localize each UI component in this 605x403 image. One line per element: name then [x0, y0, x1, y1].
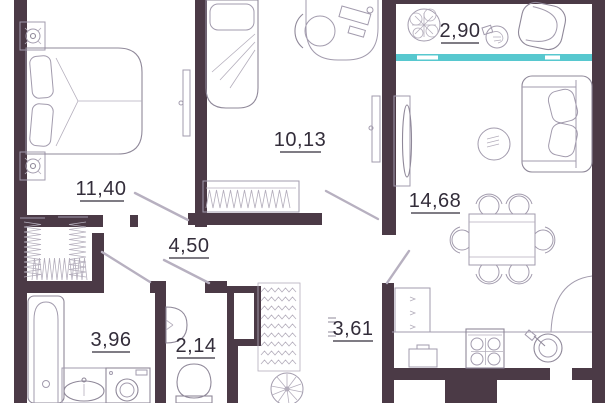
wc-door-leaf — [164, 260, 209, 283]
keyboard — [339, 6, 371, 25]
single-bed — [206, 0, 258, 108]
outer-wall-left — [14, 0, 27, 403]
room-bedroom — [20, 22, 190, 180]
glazing-tick — [545, 56, 560, 60]
glazing-tick — [417, 56, 438, 60]
svg-text:10,13: 10,13 — [274, 129, 327, 151]
wardrobe — [203, 181, 299, 212]
svg-text:2,90: 2,90 — [440, 20, 481, 42]
room-label-wc: 2,14 — [176, 335, 217, 358]
wall-stub — [130, 215, 138, 227]
kitchen — [392, 276, 592, 368]
floor-plan-canvas: 11,40 10,13 2,90 14,68 4,50 3,96 2,14 3,… — [0, 0, 605, 403]
plant-icon — [408, 9, 440, 41]
area-labels: 11,40 10,13 2,90 14,68 4,50 3,96 2,14 3,… — [75, 20, 480, 358]
room-balcony — [408, 0, 568, 52]
room-label-living-kitchen: 14,68 — [409, 190, 462, 213]
coffee-table — [478, 128, 510, 160]
kitchen-bottom-wall — [392, 368, 550, 380]
room-corridor — [258, 283, 336, 403]
svg-text:14,68: 14,68 — [409, 190, 462, 212]
dining-chair — [476, 194, 502, 216]
kitchen-door-leaf — [387, 251, 409, 283]
blanket-fold — [212, 34, 255, 88]
room-label-hallway: 4,50 — [169, 235, 210, 258]
svg-text:2,14: 2,14 — [176, 335, 217, 357]
room-bedroom-2 — [203, 0, 380, 212]
pillow — [29, 55, 54, 99]
bath-top-wall — [14, 281, 104, 293]
counter-corner — [551, 276, 592, 332]
fan-icon — [271, 373, 303, 403]
radiator — [369, 96, 380, 162]
washbasin — [62, 368, 106, 403]
room-label-bedroom-2: 10,13 — [274, 129, 327, 152]
pillow — [29, 103, 54, 147]
pillow — [210, 4, 254, 30]
lower-wall-stub — [445, 380, 497, 403]
room-label-bedroom: 11,40 — [75, 178, 126, 201]
base-cabinet — [409, 345, 437, 367]
wall-corridor-kitchen — [382, 283, 394, 403]
bathroom-door-leaf — [102, 252, 150, 282]
room-label-bathroom: 3,96 — [91, 329, 132, 352]
outer-wall-right — [592, 0, 605, 403]
floor-plan: 11,40 10,13 2,90 14,68 4,50 3,96 2,14 3,… — [0, 0, 605, 403]
desk-chair — [295, 14, 335, 48]
desk — [306, 0, 378, 60]
toilet — [176, 364, 212, 403]
wall-bath-wc — [155, 281, 166, 403]
bed2-bottom-wall — [188, 213, 322, 225]
dining-chair — [533, 227, 555, 253]
dining-table-set — [450, 194, 555, 284]
room-label-balcony: 2,90 — [440, 20, 481, 43]
sofa-pillow — [547, 122, 579, 159]
svg-text:11,40: 11,40 — [75, 178, 126, 200]
svg-text:3,96: 3,96 — [91, 329, 132, 351]
room-living-kitchen — [392, 76, 592, 368]
blanket-fold — [56, 58, 142, 146]
sofa — [522, 76, 592, 172]
wardrobe-hangers — [258, 283, 300, 371]
kitchen-bottom-wall-right — [572, 368, 605, 380]
svg-text:4,50: 4,50 — [169, 235, 210, 257]
stove — [466, 329, 504, 368]
radiator — [179, 70, 190, 136]
lamp-icon — [25, 158, 41, 174]
double-bed — [26, 48, 142, 154]
wall-below-shaft — [227, 346, 238, 403]
tv-stand — [394, 96, 412, 186]
vent-shaft-inner — [234, 293, 254, 339]
bedroom-door-leaf — [135, 193, 188, 220]
svg-text:3,61: 3,61 — [333, 318, 374, 340]
sofa-pillow — [547, 87, 580, 124]
room-bathroom — [28, 296, 150, 403]
lamp-icon — [25, 28, 41, 44]
balcony-glazing — [396, 54, 592, 61]
room-label-corridor: 3,61 — [333, 318, 374, 341]
bathtub — [28, 296, 64, 403]
desk-item — [348, 26, 365, 37]
planter-pot-icon — [482, 25, 508, 48]
dining-chair — [506, 194, 532, 216]
wall-bed1-bed2 — [195, 0, 207, 227]
balcony-top-wall — [384, 0, 605, 4]
bedroom2-door-leaf — [326, 191, 378, 219]
drawer-unit — [395, 288, 430, 332]
desk-item — [367, 7, 373, 13]
armchair — [516, 0, 568, 52]
kitchen-sink — [525, 330, 562, 362]
washing-machine — [106, 368, 150, 403]
